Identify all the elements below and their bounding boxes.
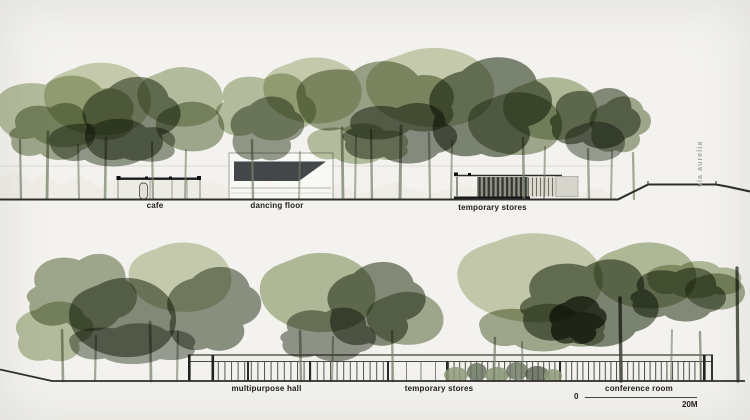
label-cafe: cafe [125,201,185,210]
label-multipurpose-hall: multipurpose hall [219,384,314,393]
bottom-section-tree-canopy [16,233,745,364]
cafe-door [140,183,148,199]
sections-artwork [0,0,750,420]
scale-bar-max: 20M [682,400,698,409]
drawing-canvas: cafe dancing floor temporary stores via … [0,0,750,420]
bottom-section [0,233,745,383]
label-road-name: via aurelia [697,141,704,187]
label-temporary-stores-top: temporary stores [450,203,535,212]
label-dancing-floor: dancing floor [237,201,317,210]
cafe-building [117,176,202,199]
dancing-floor-structure [229,153,333,199]
scale-bar: 0 20M [574,391,714,413]
scale-bar-line [585,397,697,398]
top-section [0,48,750,200]
open-bay-facade [388,362,447,381]
top-section-tree-canopy [0,48,651,167]
label-temporary-stores-bottom: temporary stores [394,384,484,393]
scale-bar-zero: 0 [574,392,578,401]
